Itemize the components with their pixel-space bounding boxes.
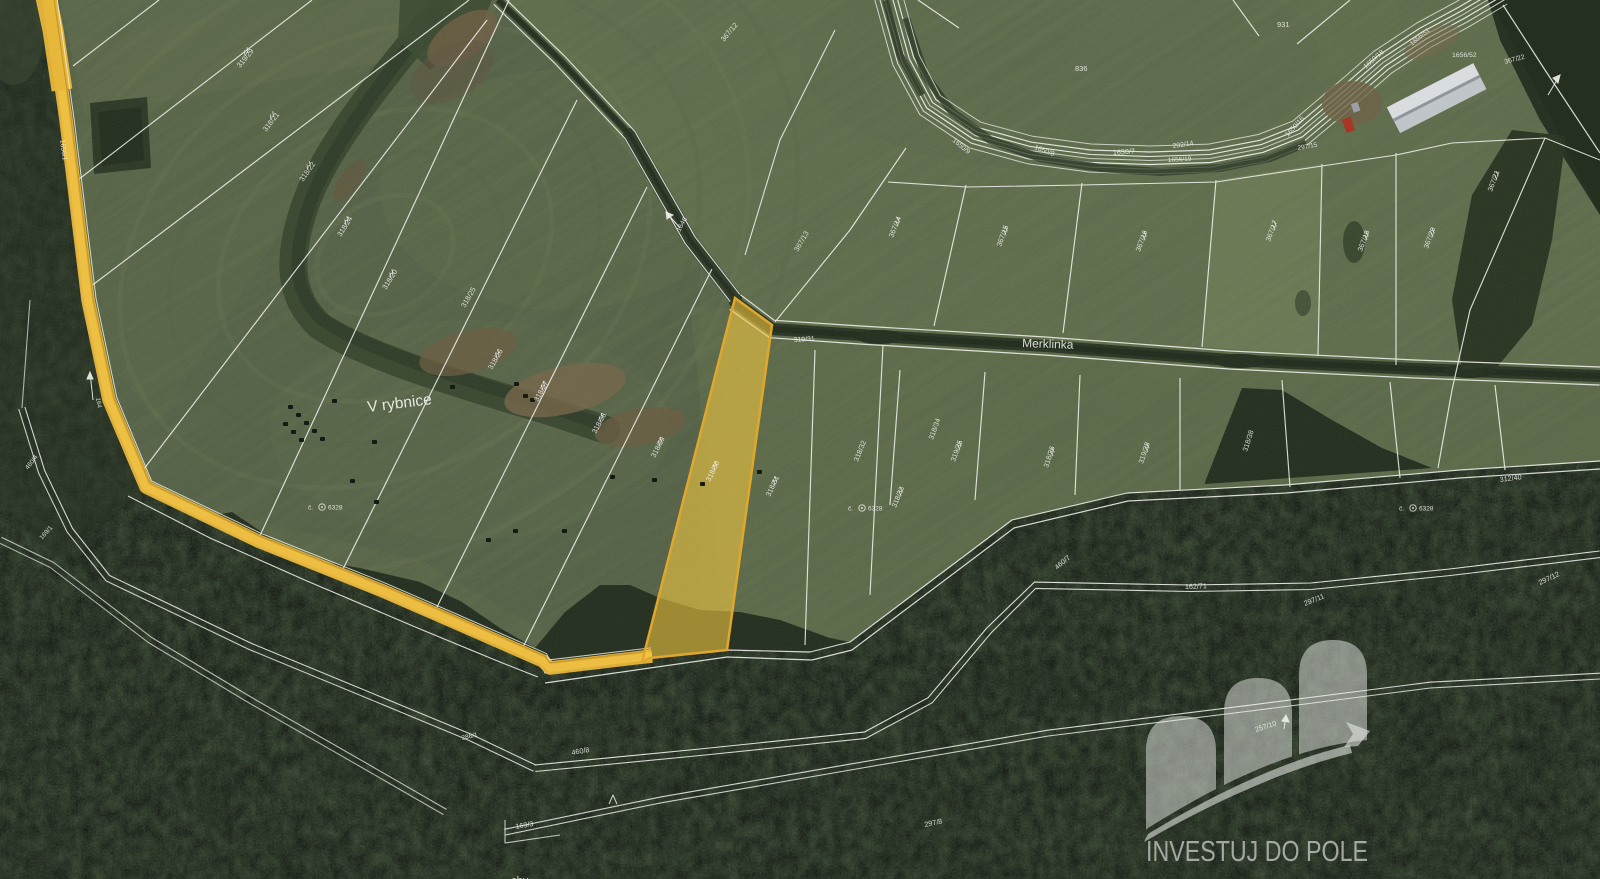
svg-text:6328: 6328 (868, 506, 883, 513)
svg-text:č.: č. (308, 505, 313, 512)
svg-text:1656/52: 1656/52 (1452, 52, 1477, 59)
svg-text:162/71: 162/71 (1185, 581, 1207, 591)
svg-text:931: 931 (1277, 20, 1290, 29)
svg-text:6328: 6328 (328, 505, 343, 512)
svg-text:836: 836 (1075, 64, 1088, 73)
svg-text:1656/19: 1656/19 (1168, 156, 1192, 164)
svg-text:319/31: 319/31 (794, 336, 815, 344)
svg-text:č.: č. (1399, 506, 1404, 513)
svg-text:č.: č. (848, 506, 853, 513)
svg-text:Merklinka: Merklinka (1022, 336, 1074, 352)
svg-text:...chy: ...chy (502, 875, 529, 879)
svg-text:INVESTUJ DO POLE: INVESTUJ DO POLE (1146, 836, 1368, 868)
svg-text:6328: 6328 (1419, 506, 1434, 513)
svg-text:1650/7: 1650/7 (1113, 146, 1136, 157)
